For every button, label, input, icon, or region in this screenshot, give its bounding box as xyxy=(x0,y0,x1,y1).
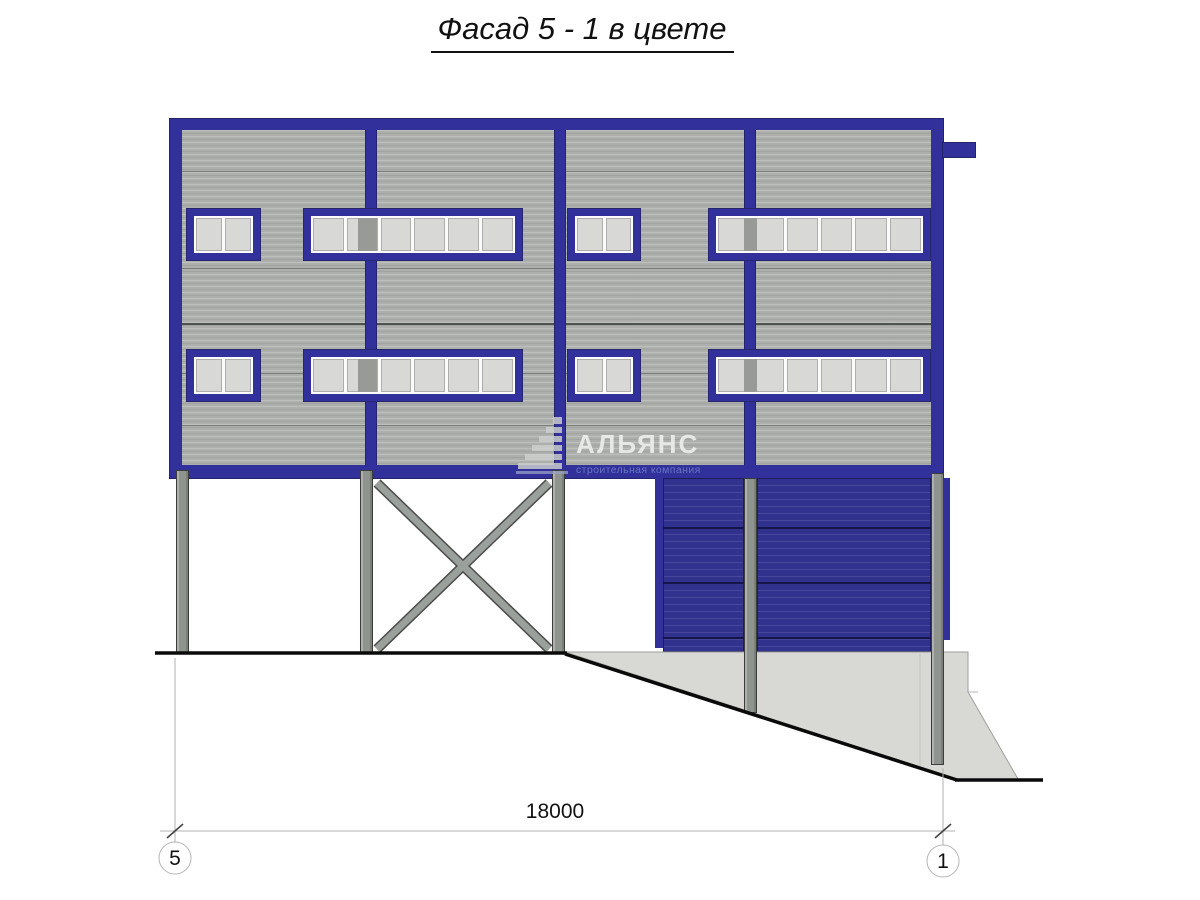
company-watermark: АЛЬЯНС строительная компания xyxy=(516,411,706,481)
axis-marker-5: 5 xyxy=(159,845,191,873)
cross-brace xyxy=(377,483,549,649)
watermark-subtitle: строительная компания xyxy=(576,464,701,476)
sail-logo-icon xyxy=(516,411,570,479)
dimension-label: 18000 xyxy=(505,800,605,824)
axis-marker-1: 1 xyxy=(927,848,959,876)
watermark-name: АЛЬЯНС xyxy=(576,429,699,460)
ground-slope-line xyxy=(565,654,957,780)
